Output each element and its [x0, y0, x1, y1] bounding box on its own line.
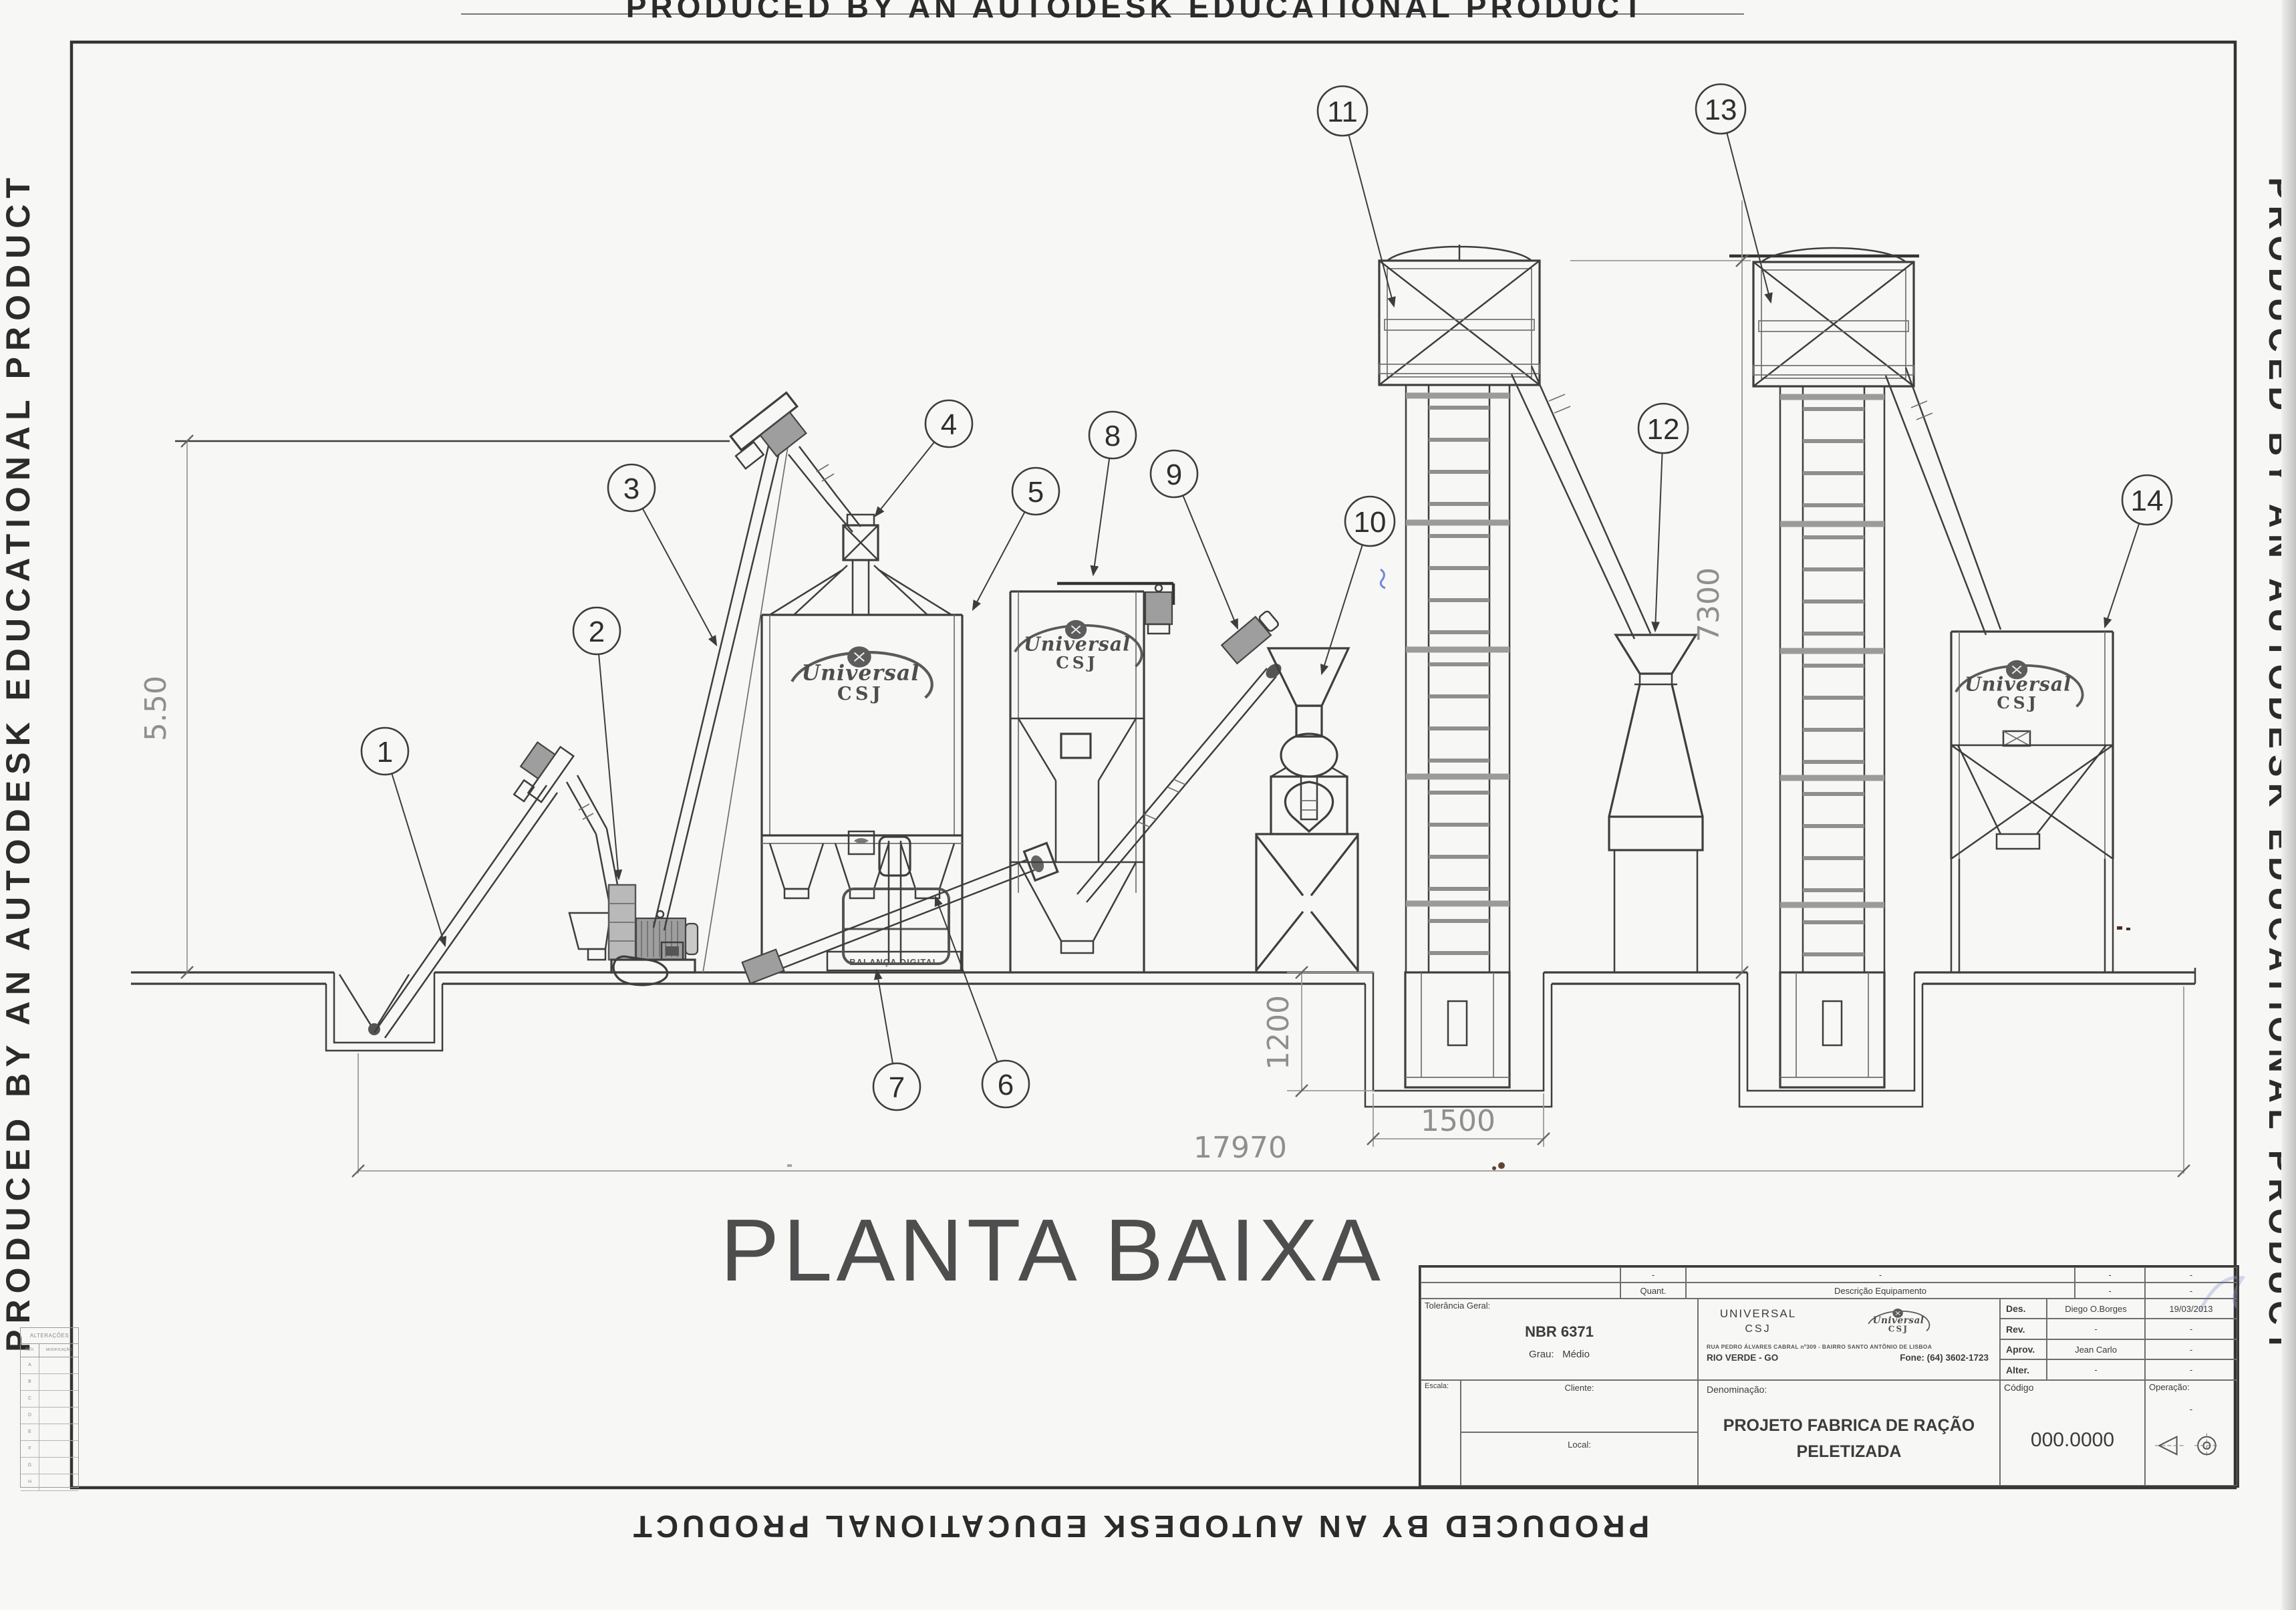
revision-col-rev: REV.: [21, 1344, 39, 1357]
machine-1-intake-screw-conveyor: [374, 734, 622, 1038]
strip-cell-empty: [1421, 1283, 1620, 1299]
revision-table-header: REV. MODIFICAÇÃO: [21, 1344, 78, 1357]
svg-text:3: 3: [623, 473, 639, 505]
rev-name: -: [2047, 1319, 2145, 1339]
company-name-1: UNIVERSAL: [1708, 1307, 1808, 1321]
callout-14: 14: [2122, 475, 2172, 525]
tolerancia-label: Tolerância Geral:: [1425, 1301, 1490, 1311]
cliente-cell: Cliente:: [1461, 1380, 1698, 1432]
svg-text:4: 4: [941, 408, 957, 441]
machine-10-pellet-press: [1256, 648, 1358, 972]
callout-2: 2: [573, 608, 620, 654]
revision-row: H: [21, 1474, 78, 1491]
svg-text:1500: 1500: [1421, 1104, 1495, 1138]
machine-8-silo: [1010, 583, 1173, 972]
page-title: PLANTA BAIXA: [720, 1201, 1385, 1299]
callout-4: 4: [925, 400, 972, 447]
watermark-top: PRODUCED BY AN AUTODESK EDUCATIONAL PROD…: [626, 0, 1646, 24]
callout-11: 11: [1318, 86, 1367, 136]
des-label: Des.: [2000, 1299, 2047, 1319]
callout-10: 10: [1345, 497, 1395, 546]
callout-12: 12: [1638, 404, 1688, 453]
revision-row: D: [21, 1407, 78, 1424]
callout-5: 5: [1012, 468, 1059, 515]
revision-row: F: [21, 1441, 78, 1458]
norma-value: NBR 6371: [1421, 1323, 1697, 1341]
local-cell: Local:: [1461, 1432, 1698, 1486]
title-block: - - - - Quant. Descrição Equipamento - -…: [1419, 1265, 2239, 1488]
revision-row: G: [21, 1458, 78, 1474]
scale-label: BALANÇA DIGITAL: [849, 957, 938, 967]
svg-text:14: 14: [2131, 485, 2164, 517]
denominacao-line2: PELETIZADA: [1699, 1439, 1999, 1465]
scanned-drawing-page: Universal CSJ PRODUCED BY AN AUTODESK ED…: [0, 0, 2296, 1610]
svg-text:9: 9: [1166, 458, 1182, 491]
operacao-cell: Operação: -: [2145, 1380, 2237, 1486]
machine-5-vertical-mixer: [762, 615, 962, 972]
revision-table-title: ALTERAÇÕES: [21, 1328, 78, 1344]
aprov-name: Jean Carlo: [2047, 1339, 2145, 1359]
company-address: RUA PEDRO ÁLVARES CABRAL nº309 - BAIRRO …: [1699, 1343, 1999, 1350]
revision-table: ALTERAÇÕES REV. MODIFICAÇÃO A B C D E F …: [20, 1327, 79, 1488]
dimension-1200: 1200: [1262, 966, 1375, 1097]
strip-cell: -: [1686, 1267, 2075, 1283]
des-date: 19/03/2013: [2145, 1299, 2237, 1319]
callout-7: 7: [873, 1063, 920, 1110]
machine-11-bucket-elevator-1: [1379, 245, 1651, 1087]
callout-6: 6: [982, 1061, 1029, 1107]
projection-symbols-icon: [2154, 1432, 2229, 1460]
callout-1: 1: [362, 728, 408, 775]
revision-row: C: [21, 1391, 78, 1407]
machine-2-hammer-mill: [569, 885, 698, 985]
quant-header: Quant.: [1620, 1283, 1686, 1299]
svg-text:6: 6: [998, 1069, 1014, 1101]
machine-7-digital-scale: BALANÇA DIGITAL: [827, 837, 961, 970]
local-label: Local:: [1461, 1433, 1697, 1450]
callout-9: 9: [1151, 450, 1197, 497]
aprov-label: Aprov.: [2000, 1339, 2047, 1359]
rev-date: -: [2145, 1319, 2237, 1339]
company-name-2: CSJ: [1708, 1323, 1808, 1335]
company-city: RIO VERDE - GO: [1707, 1353, 1778, 1363]
svg-text:10: 10: [1354, 506, 1387, 539]
descricao-header: Descrição Equipamento: [1686, 1283, 2075, 1299]
company-logo: [1828, 1299, 1969, 1343]
machine-3-inclined-conveyor: [654, 393, 813, 972]
codigo-label: Código: [2004, 1382, 2033, 1393]
callout-13: 13: [1696, 84, 1745, 134]
revision-row: B: [21, 1374, 78, 1391]
codigo-cell: Código 000.0000: [2000, 1380, 2145, 1486]
machine-4-downspout-tripod: [770, 446, 952, 615]
grau-value: Médio: [1562, 1349, 1590, 1360]
denominacao-label: Denominação:: [1707, 1384, 1767, 1395]
strip-cell: -: [1620, 1267, 1686, 1283]
svg-text:1: 1: [377, 736, 393, 769]
callout-8: 8: [1089, 412, 1136, 458]
svg-text:17970: 17970: [1193, 1131, 1287, 1165]
denominacao-line1: PROJETO FABRICA DE RAÇÃO: [1699, 1413, 1999, 1439]
machine-12-cyclone: [1609, 635, 1703, 972]
des-name: Diego O.Borges: [2047, 1299, 2145, 1319]
watermark-bottom: PRODUCED BY AN AUTODESK EDUCATIONAL PROD…: [629, 1509, 1649, 1544]
revision-col-modif: MODIFICAÇÃO: [39, 1344, 78, 1357]
escala-label: Escala:: [1425, 1382, 1449, 1390]
cliente-label: Cliente:: [1461, 1381, 1697, 1393]
svg-text:12: 12: [1647, 413, 1680, 446]
company-phone: Fone: (64) 3602-1723: [1900, 1353, 1989, 1363]
svg-text:7300: 7300: [1692, 567, 1726, 642]
svg-text:2: 2: [589, 616, 605, 648]
codigo-value: 000.0000: [2001, 1429, 2144, 1452]
svg-text:8: 8: [1105, 420, 1121, 452]
dimension-7300: 7300: [1570, 200, 1751, 978]
machine-14-product-silo: [1951, 632, 2113, 972]
alter-name: -: [2047, 1359, 2145, 1380]
revision-row: A: [21, 1357, 78, 1374]
alter-date: -: [2145, 1359, 2237, 1380]
ground-floor: [131, 968, 2195, 1107]
dimension-1500: 1500: [1367, 1093, 1550, 1147]
aprov-date: -: [2145, 1339, 2237, 1359]
strip-cell: -: [2145, 1267, 2237, 1283]
rev-label: Rev.: [2000, 1319, 2047, 1339]
tolerancia-cell: Tolerância Geral: NBR 6371 Grau: Médio: [1421, 1299, 1698, 1380]
strip-cell: -: [2075, 1283, 2145, 1299]
denominacao-cell: Denominação: PROJETO FABRICA DE RAÇÃO PE…: [1698, 1380, 2000, 1486]
scan-edge-shadow: [2281, 0, 2296, 1610]
callout-3: 3: [608, 464, 655, 511]
strip-cell: -: [2075, 1267, 2145, 1283]
svg-text:13: 13: [1705, 94, 1737, 126]
grau-label: Grau:: [1529, 1349, 1554, 1360]
svg-text:1200: 1200: [1262, 995, 1296, 1070]
operacao-value: -: [2146, 1403, 2237, 1414]
svg-text:11: 11: [1327, 96, 1358, 128]
svg-text:7: 7: [889, 1071, 905, 1104]
svg-text:5: 5: [1028, 476, 1044, 509]
strip-cell-empty: [1421, 1267, 1620, 1283]
grau-row: Grau: Médio: [1421, 1349, 1697, 1360]
alter-label: Alter.: [2000, 1359, 2047, 1380]
company-cell: UNIVERSAL CSJ RUA PEDRO ÁLVARES CABRAL n…: [1698, 1299, 2000, 1380]
operacao-label: Operação:: [2149, 1382, 2190, 1392]
strip-cell: -: [2145, 1283, 2237, 1299]
dimension-5-50: 5.50: [139, 435, 730, 978]
revision-row: E: [21, 1424, 78, 1441]
escala-cell: Escala:: [1421, 1380, 1461, 1486]
watermark-left: PRODUCED BY AN AUTODESK EDUCATIONAL PROD…: [0, 172, 37, 1352]
svg-text:5.50: 5.50: [139, 676, 173, 741]
